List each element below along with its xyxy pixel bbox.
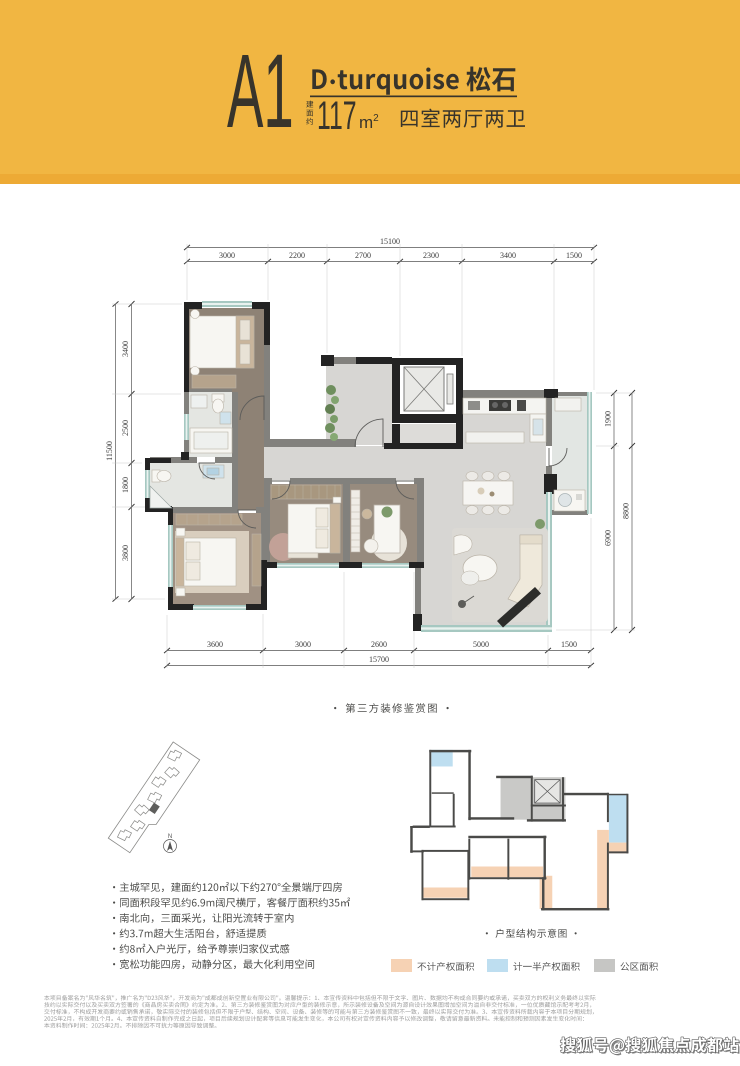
svg-text:2500: 2500: [121, 420, 130, 436]
svg-text:11500: 11500: [105, 441, 114, 461]
svg-text:A1: A1: [227, 32, 294, 150]
svg-text:1800: 1800: [121, 477, 130, 493]
svg-text:15700: 15700: [369, 655, 389, 664]
svg-text:5000: 5000: [473, 640, 489, 649]
svg-text:N: N: [168, 834, 172, 840]
svg-text:3600: 3600: [207, 640, 223, 649]
svg-text:1500: 1500: [566, 251, 582, 260]
svg-text:3000: 3000: [219, 251, 235, 260]
svg-text:117: 117: [317, 94, 357, 138]
svg-text:8800: 8800: [622, 503, 631, 519]
svg-text:2300: 2300: [423, 251, 439, 260]
svg-text:2700: 2700: [355, 251, 371, 260]
svg-text:3000: 3000: [295, 640, 311, 649]
svg-text:2600: 2600: [371, 640, 387, 649]
svg-text:1500: 1500: [561, 640, 577, 649]
svg-text:3400: 3400: [500, 251, 516, 260]
svg-text:6900: 6900: [604, 530, 613, 546]
svg-text:15100: 15100: [380, 237, 400, 246]
svg-text:1900: 1900: [604, 411, 613, 427]
svg-text:2200: 2200: [289, 251, 305, 260]
svg-text:3800: 3800: [121, 545, 130, 561]
svg-text:3400: 3400: [121, 341, 130, 357]
